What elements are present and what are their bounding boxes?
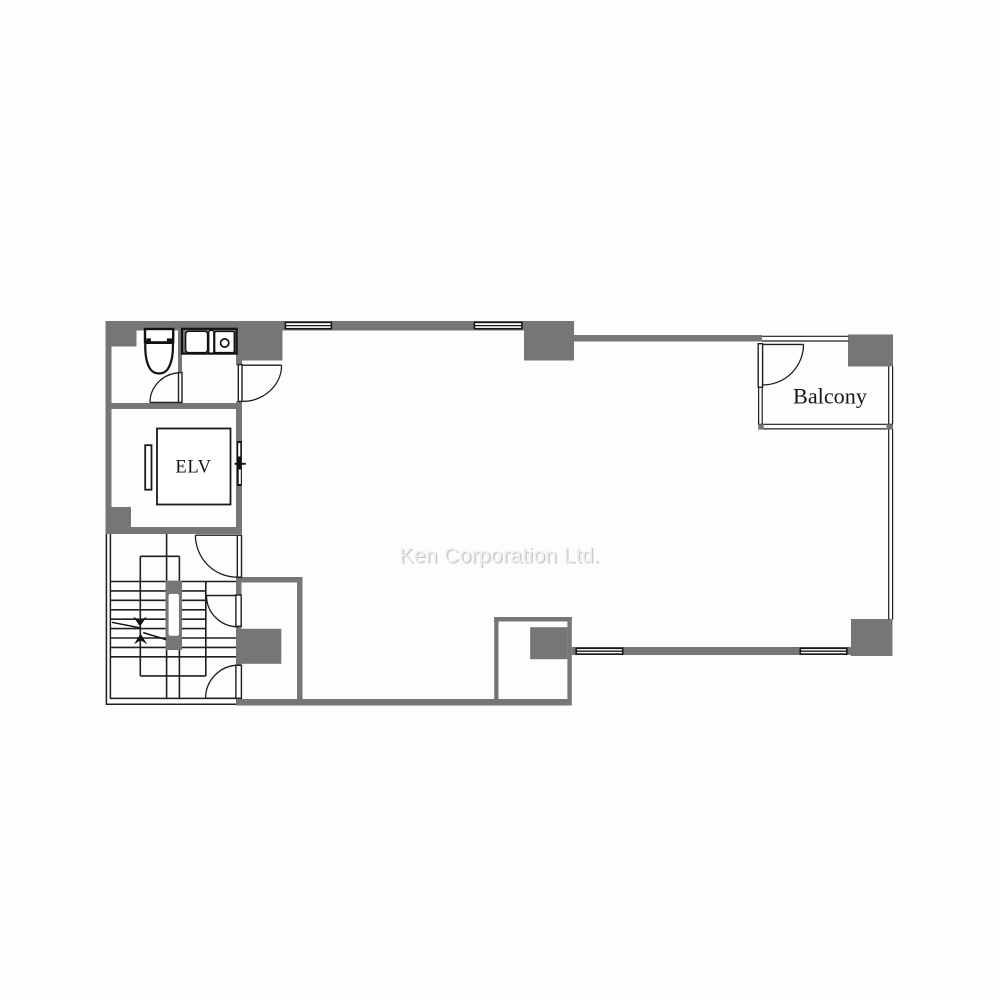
svg-text:Ken Corporation Ltd.: Ken Corporation Ltd. [399, 544, 600, 567]
svg-text:Balcony: Balcony [793, 384, 867, 409]
svg-text:ELV: ELV [175, 458, 211, 478]
